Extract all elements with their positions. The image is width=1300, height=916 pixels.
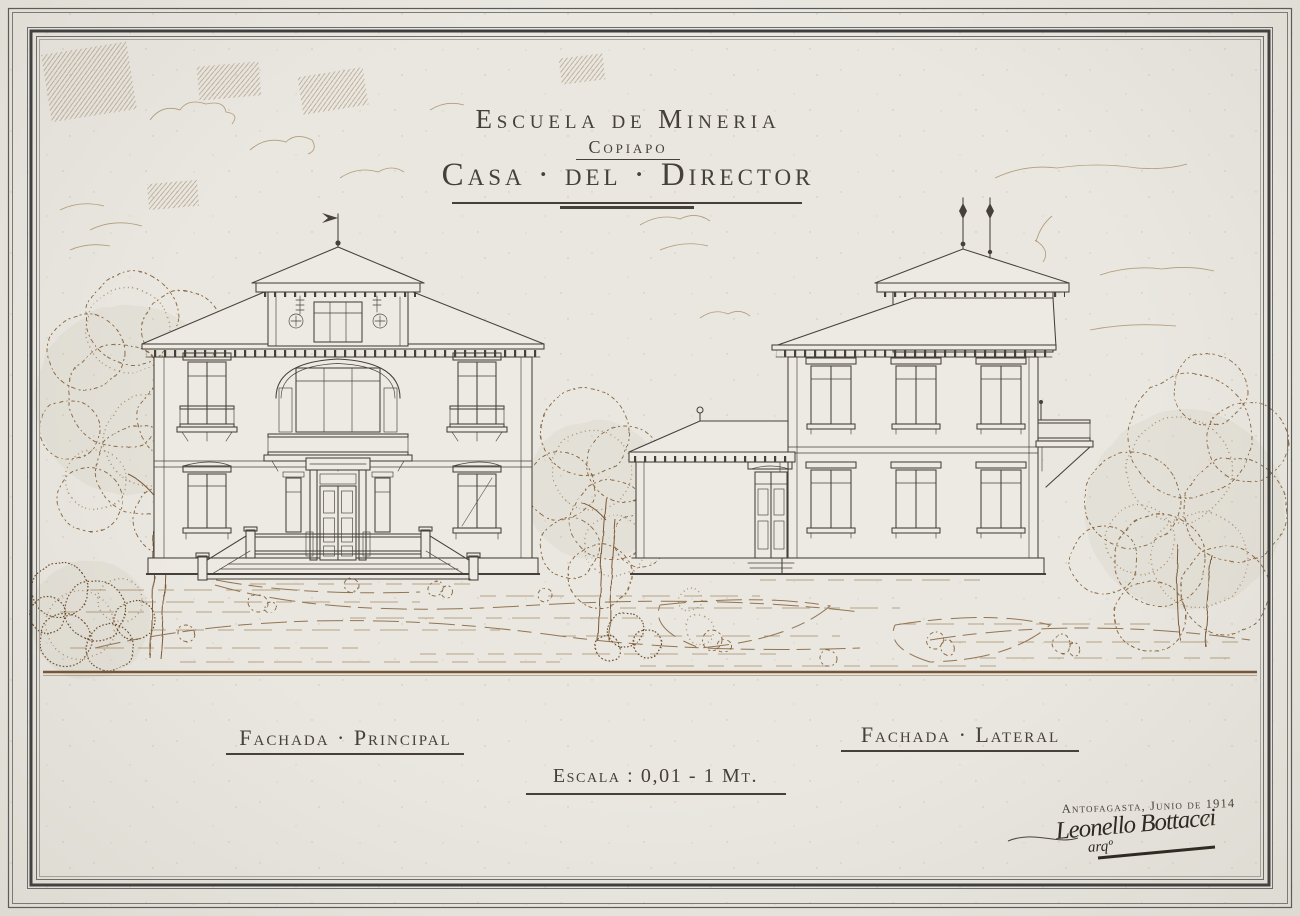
label-fachada-principal-underline xyxy=(226,753,464,755)
scanned-architectural-plan: { "title_block": { "line1": "Escuela de … xyxy=(0,0,1300,916)
title-line1: Escuela de Mineria xyxy=(0,104,1256,135)
label-escala-underline xyxy=(526,793,786,795)
label-fachada-principal: Fachada · Principal xyxy=(228,725,463,751)
title-underline-short xyxy=(560,206,694,209)
title-underline-long xyxy=(452,202,802,204)
title-line3: Casa · del · Director xyxy=(0,157,1256,194)
label-fachada-lateral: Fachada · Lateral xyxy=(843,722,1078,748)
label-fachada-lateral-underline xyxy=(841,750,1079,752)
label-escala: Escala : 0,01 - 1 Mt. xyxy=(528,765,783,788)
architect-title: arqº xyxy=(1087,838,1113,857)
